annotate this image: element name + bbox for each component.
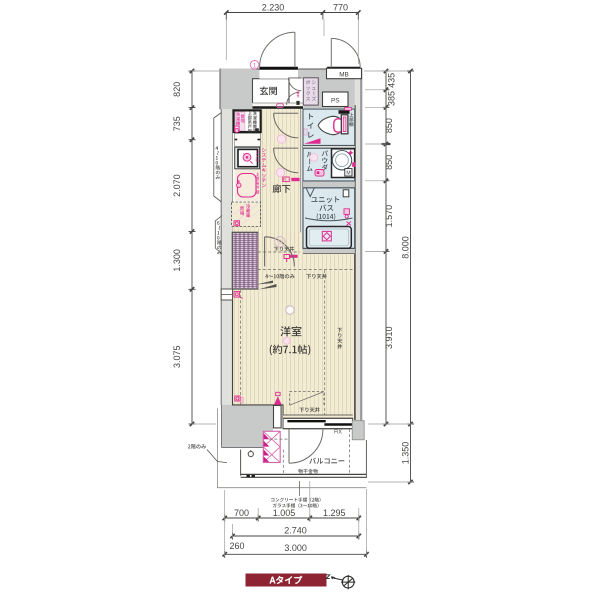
svg-text:8.000: 8.000 [401,236,411,259]
svg-text:820: 820 [172,82,182,97]
svg-text:1.005: 1.005 [273,508,296,518]
svg-text:700: 700 [234,508,249,518]
svg-text:R: R [283,177,286,182]
svg-text:3.910: 3.910 [384,326,394,349]
svg-text:3.075: 3.075 [172,345,182,368]
svg-text:FIX: FIX [334,429,342,435]
svg-text:260: 260 [229,541,244,551]
svg-text:385: 385 [387,91,397,106]
svg-text:1.350: 1.350 [401,442,411,465]
svg-text:1.295: 1.295 [323,508,346,518]
svg-text:850: 850 [384,118,394,133]
svg-text:1.300: 1.300 [172,249,182,272]
svg-text:PS: PS [331,97,340,104]
svg-text:2.740: 2.740 [284,526,307,536]
svg-text:850: 850 [384,155,394,170]
svg-text:1: 1 [253,63,257,70]
svg-text:MB: MB [339,72,349,79]
svg-text:1.570: 1.570 [384,205,394,228]
svg-text:2.070: 2.070 [172,174,182,197]
svg-text:3.000: 3.000 [284,543,307,553]
svg-text:2.230: 2.230 [262,2,285,12]
svg-text:770: 770 [333,2,348,12]
svg-text:435: 435 [387,73,397,88]
svg-text:M: M [346,171,350,177]
svg-text:735: 735 [172,116,182,131]
